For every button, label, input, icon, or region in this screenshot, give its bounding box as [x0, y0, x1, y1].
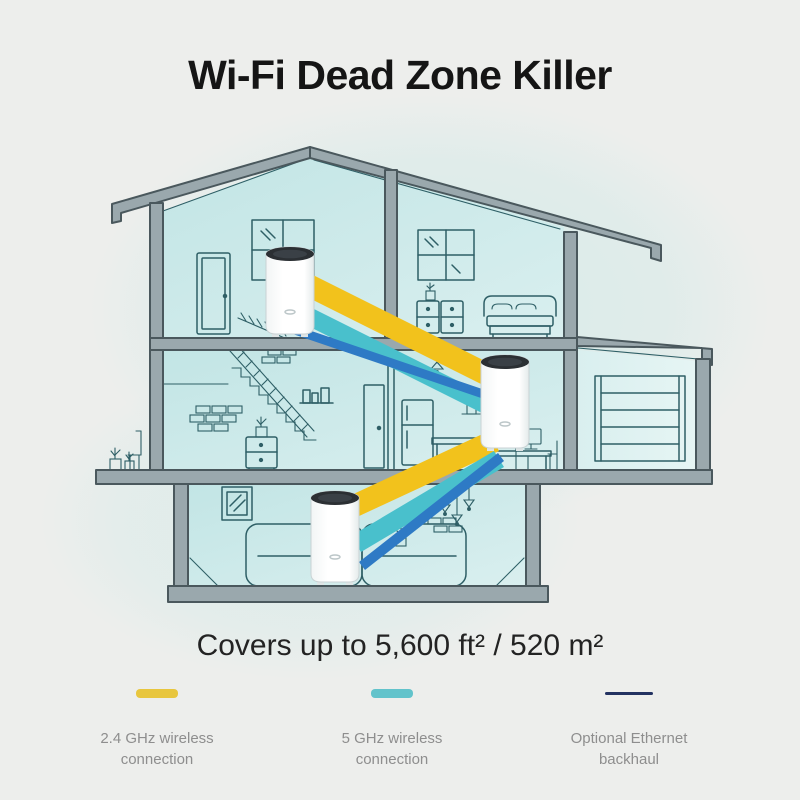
legend-label-line: backhaul: [519, 749, 739, 770]
ground-wall-right: [526, 484, 540, 588]
page-title: Wi-Fi Dead Zone Killer: [0, 52, 800, 99]
legend-label-line: Optional Ethernet: [519, 728, 739, 749]
legend-label-5ghz: 5 GHz wireless connection: [282, 728, 502, 771]
wall-left: [150, 203, 163, 470]
legend: 2.4 GHz wireless connection 5 GHz wirele…: [0, 686, 800, 776]
unit-top-vent: [318, 494, 352, 503]
legend-item-ethernet: Optional Ethernet backhaul: [519, 686, 739, 771]
legend-label-line: 5 GHz wireless: [282, 728, 502, 749]
legend-item-24ghz: 2.4 GHz wireless connection: [47, 686, 267, 771]
unit-top-vent: [273, 250, 307, 259]
legend-swatch-5ghz: [371, 689, 413, 698]
legend-label-line: connection: [282, 749, 502, 770]
deco-unit-kitchen: [481, 355, 529, 451]
deco-unit-attic: [266, 247, 314, 337]
page: Wi-Fi Dead Zone Killer Covers up to 5,60…: [0, 0, 800, 800]
garage-wall-right: [696, 359, 710, 470]
coverage-text: Covers up to 5,600 ft² / 520 m²: [0, 629, 800, 663]
legend-swatch-ethernet: [605, 692, 653, 695]
deco-unit-living-room: [311, 491, 359, 585]
ground-wall-left: [174, 484, 188, 588]
legend-label-line: connection: [47, 749, 267, 770]
house-illustration: [0, 0, 800, 800]
unit-top-vent: [488, 358, 522, 367]
legend-swatch-24ghz: [136, 689, 178, 698]
legend-label-24ghz: 2.4 GHz wireless connection: [47, 728, 267, 771]
ground-slab: [168, 586, 548, 602]
legend-item-5ghz: 5 GHz wireless connection: [282, 686, 502, 771]
legend-label-ethernet: Optional Ethernet backhaul: [519, 728, 739, 771]
legend-label-line: 2.4 GHz wireless: [47, 728, 267, 749]
